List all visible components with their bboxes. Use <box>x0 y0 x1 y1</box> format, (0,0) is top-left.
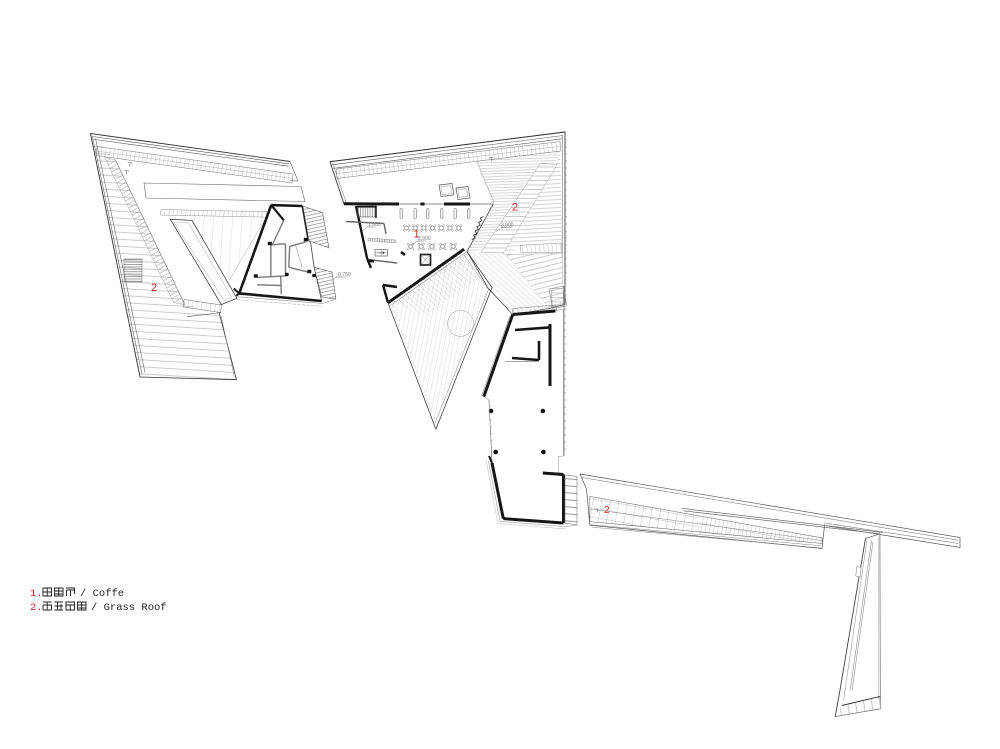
svg-text:2.: 2. <box>30 602 43 614</box>
svg-text:1.900: 1.900 <box>368 222 381 228</box>
svg-text:/ Coffe: / Coffe <box>80 588 124 600</box>
svg-text:3.900: 3.900 <box>418 236 431 242</box>
svg-text:2: 2 <box>512 202 518 214</box>
svg-text:1.: 1. <box>30 588 43 600</box>
svg-text:/ Grass Roof: / Grass Roof <box>91 602 167 614</box>
svg-text:2: 2 <box>604 505 610 516</box>
svg-text:2: 2 <box>151 282 157 294</box>
svg-text:-0.750: -0.750 <box>337 272 351 278</box>
svg-text:3.900: 3.900 <box>501 223 514 229</box>
